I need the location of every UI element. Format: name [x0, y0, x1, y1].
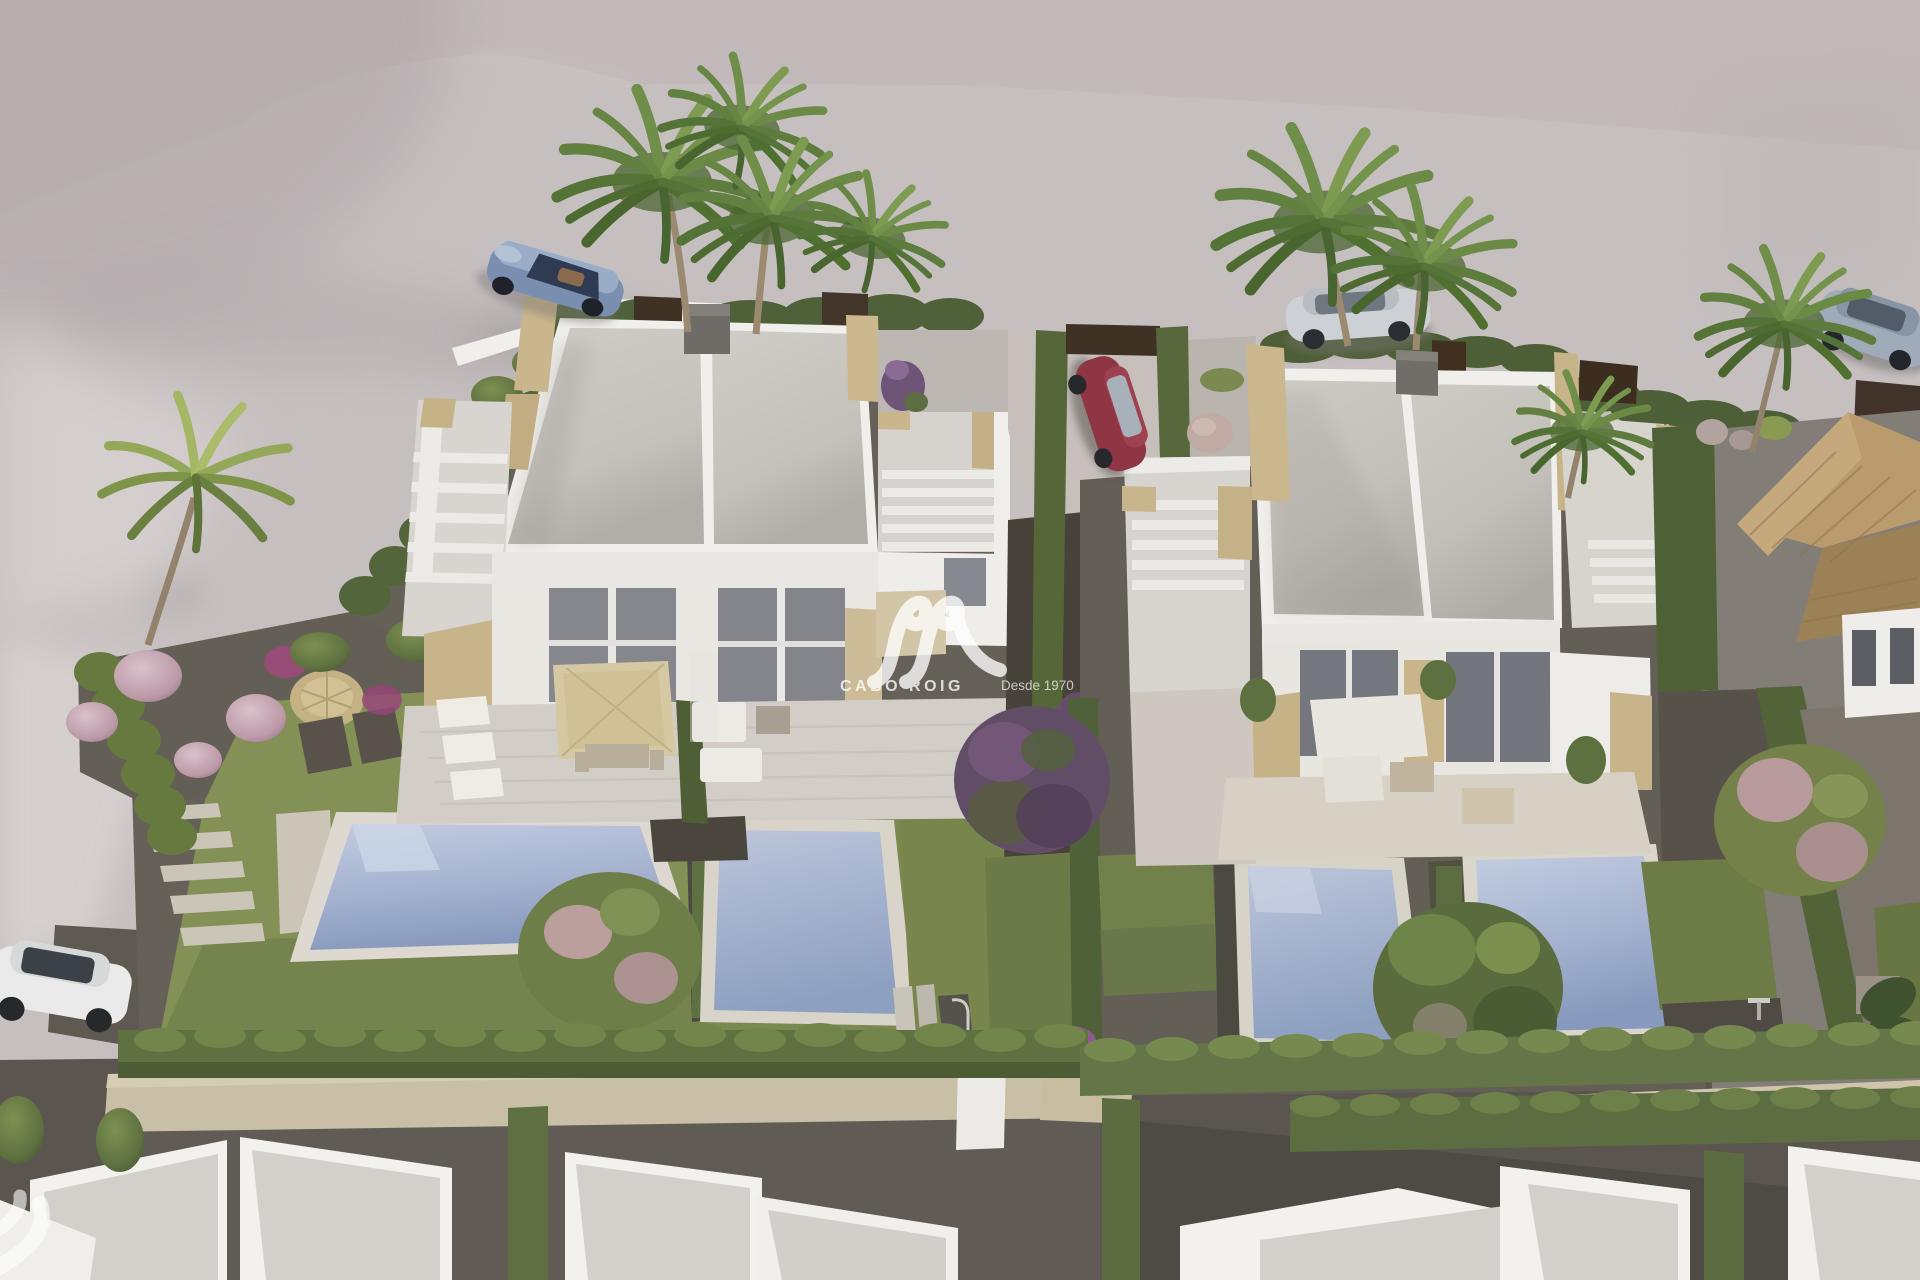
- svg-text:Desde 1970: Desde 1970: [1001, 678, 1074, 693]
- svg-text:CABO ROIG: CABO ROIG: [840, 678, 964, 695]
